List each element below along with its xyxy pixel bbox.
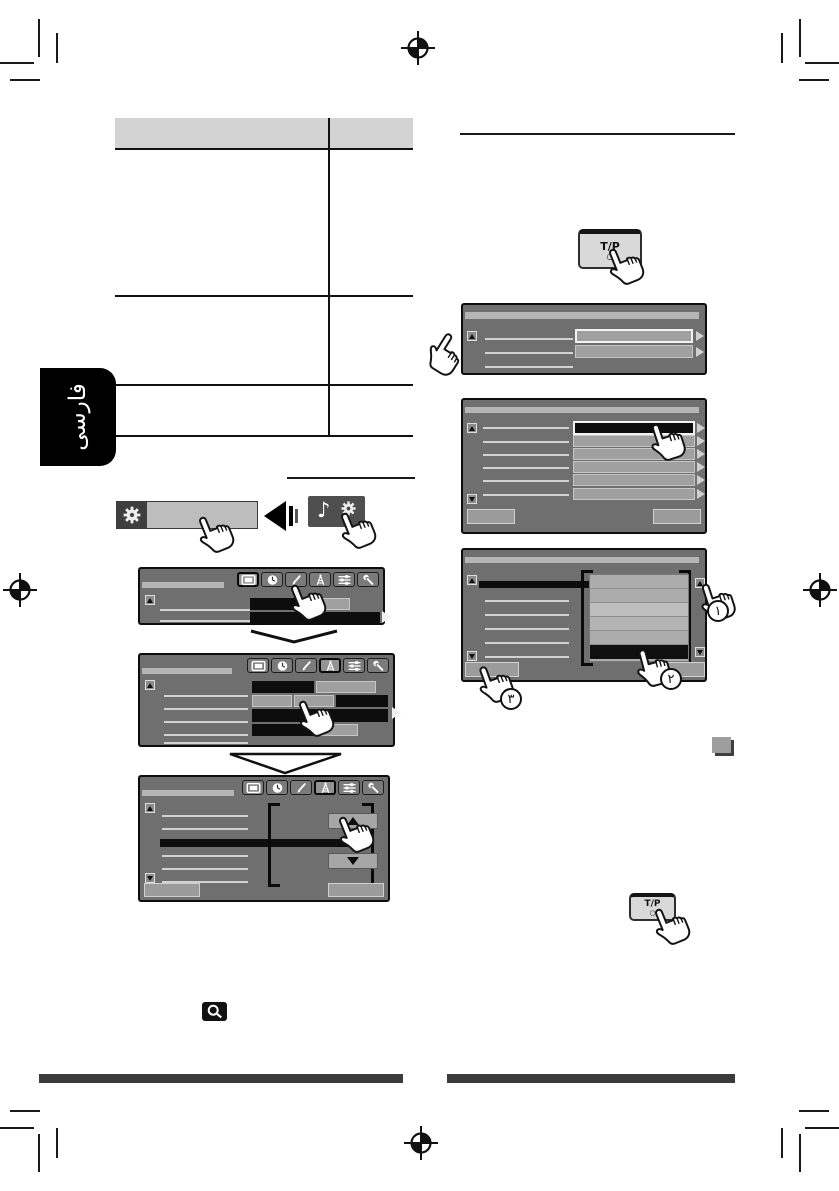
crop-mark: [10, 79, 40, 81]
tab-tuner: [319, 658, 341, 673]
selected-item-bar: [479, 581, 591, 588]
next-page-icon: [382, 611, 391, 623]
menu-item-line: [485, 628, 569, 630]
crop-mark: [805, 62, 839, 64]
gear-icon: [117, 502, 147, 528]
value-box: [573, 474, 695, 486]
menu-item-line: [485, 600, 569, 602]
menu-item-line: [164, 721, 248, 723]
next-page-icon: [392, 707, 401, 719]
tab-color: [295, 658, 317, 673]
crop-mark: [799, 79, 829, 81]
tab-audio: [333, 572, 355, 587]
tab-audio: [338, 780, 360, 795]
screen-header-strip: [142, 582, 224, 588]
crop-mark: [56, 1128, 58, 1158]
popup-option: [590, 603, 688, 617]
tab-tuner: [314, 780, 336, 795]
popup-option: [590, 589, 688, 603]
settings-table: [115, 118, 413, 437]
menu-item-line: [485, 614, 569, 616]
scroll-up-icon: [467, 575, 477, 585]
screen-tuner-list-1: [461, 303, 707, 375]
expand-icon: [697, 462, 705, 472]
crop-mark: [781, 1128, 783, 1158]
menu-item-line: [483, 427, 569, 429]
value-box: [573, 461, 695, 473]
menu-item-line: [485, 366, 573, 368]
tab-settings: [362, 780, 384, 795]
registration-mark-icon: [2, 572, 38, 608]
settings-bar: [116, 501, 258, 529]
crop-mark: [10, 1110, 40, 1112]
menu-item-line: [162, 868, 248, 870]
tab-color: [290, 780, 312, 795]
screen-header-strip: [142, 668, 232, 674]
back-button: [144, 883, 200, 897]
menu-item-line: [160, 620, 250, 622]
crop-mark: [0, 1127, 34, 1129]
magnifier-icon: [202, 1002, 227, 1021]
popup-scroll-down-icon: [695, 647, 705, 657]
adjust-bracket-left: [268, 803, 280, 887]
scroll-up-icon: [467, 331, 477, 341]
table-column-divider: [328, 118, 330, 437]
popup-option: [590, 617, 688, 631]
tab-clock: [266, 780, 288, 795]
crop-mark: [781, 33, 783, 63]
tab-settings: [357, 572, 379, 587]
tab-audio: [343, 658, 365, 673]
registration-mark-icon: [400, 30, 436, 66]
section-rule: [460, 133, 735, 135]
section-rule: [287, 477, 415, 479]
crop-mark: [0, 62, 34, 64]
menu-item-line: [162, 855, 248, 857]
value-box: [573, 488, 695, 500]
menu-item-line: [164, 742, 248, 744]
crop-mark: [799, 1110, 829, 1112]
screen-header-strip: [465, 407, 699, 413]
table-row-divider: [115, 384, 413, 386]
value-box: [252, 681, 314, 693]
scroll-down-icon: [467, 494, 477, 504]
tab-clock: [261, 572, 283, 587]
screen-header-strip: [465, 312, 699, 319]
language-tab-farsi: فارسی: [40, 368, 116, 466]
table-row-divider: [115, 295, 413, 297]
language-tab-label: فارسی: [65, 383, 91, 451]
value-box: [252, 695, 292, 707]
menu-item-line: [164, 708, 248, 710]
scroll-down-icon: [467, 651, 477, 661]
menu-item-line: [485, 656, 569, 658]
expand-icon: [697, 489, 705, 499]
crop-mark: [56, 33, 58, 63]
down-chevron: [248, 628, 340, 646]
menu-item-line: [483, 467, 569, 469]
expand-icon: [697, 449, 705, 459]
tab-display: [237, 572, 259, 587]
expand-icon: [696, 331, 704, 341]
screen-header-strip: [142, 790, 234, 796]
menu-item-line: [483, 454, 569, 456]
expand-icon: [697, 475, 705, 485]
footer-bar-left: [39, 1074, 403, 1083]
value-box: [575, 345, 693, 358]
music-note-glyph: ♪: [317, 498, 330, 522]
screen-settings-menu-1: [138, 567, 385, 625]
tp-indicator-swatch: [712, 737, 731, 753]
tab-settings: [367, 658, 389, 673]
crop-mark: [38, 19, 40, 57]
menu-item-line: [164, 734, 248, 736]
scroll-up-icon: [145, 680, 155, 690]
menu-item-line: [485, 642, 569, 644]
crop-mark: [805, 1127, 839, 1129]
value-box: [336, 695, 388, 707]
table-bottom-border: [115, 435, 413, 437]
scroll-up-icon: [145, 803, 155, 813]
menu-item-line: [160, 609, 250, 611]
crop-mark: [799, 19, 801, 57]
registration-mark-icon: [403, 1125, 439, 1161]
expand-icon: [696, 347, 704, 357]
ok-button: [328, 883, 384, 897]
menu-item-line: [483, 441, 569, 443]
menu-item-line: [162, 828, 248, 830]
tab-display: [247, 658, 269, 673]
step-badge-2: ٢: [660, 668, 682, 690]
menu-item-line: [485, 352, 573, 354]
tab-clock: [271, 658, 293, 673]
back-button: [467, 509, 515, 524]
step-badge-3: ٣: [500, 688, 522, 710]
screen-header-strip: [465, 557, 699, 563]
menu-item-line: [162, 815, 248, 817]
popup-option: [590, 631, 688, 645]
registration-mark-icon: [802, 572, 838, 608]
step-badge-1: ١: [707, 600, 729, 622]
menu-item-line: [483, 480, 569, 482]
expand-icon: [697, 423, 705, 433]
popup-option: [590, 575, 688, 589]
expand-icon: [697, 436, 705, 446]
screen-settings-menu-2: [138, 653, 395, 747]
manual-page: فارسی ♪: [0, 0, 839, 1191]
ok-button: [653, 509, 701, 524]
menu-item-line: [485, 338, 573, 340]
scroll-up-icon: [145, 595, 155, 605]
footer-bar-right: [447, 1074, 735, 1083]
table-header-row: [115, 118, 413, 150]
down-chevron: [228, 752, 344, 776]
menu-item-line: [164, 695, 248, 697]
crop-mark: [799, 1134, 801, 1172]
value-box-selected: [575, 329, 693, 343]
scroll-down-icon: [145, 873, 155, 883]
menu-item-line: [483, 494, 569, 496]
scroll-up-icon: [467, 423, 477, 433]
left-arrow-icon: [264, 501, 304, 531]
crop-mark: [38, 1134, 40, 1172]
tab-display: [242, 780, 264, 795]
